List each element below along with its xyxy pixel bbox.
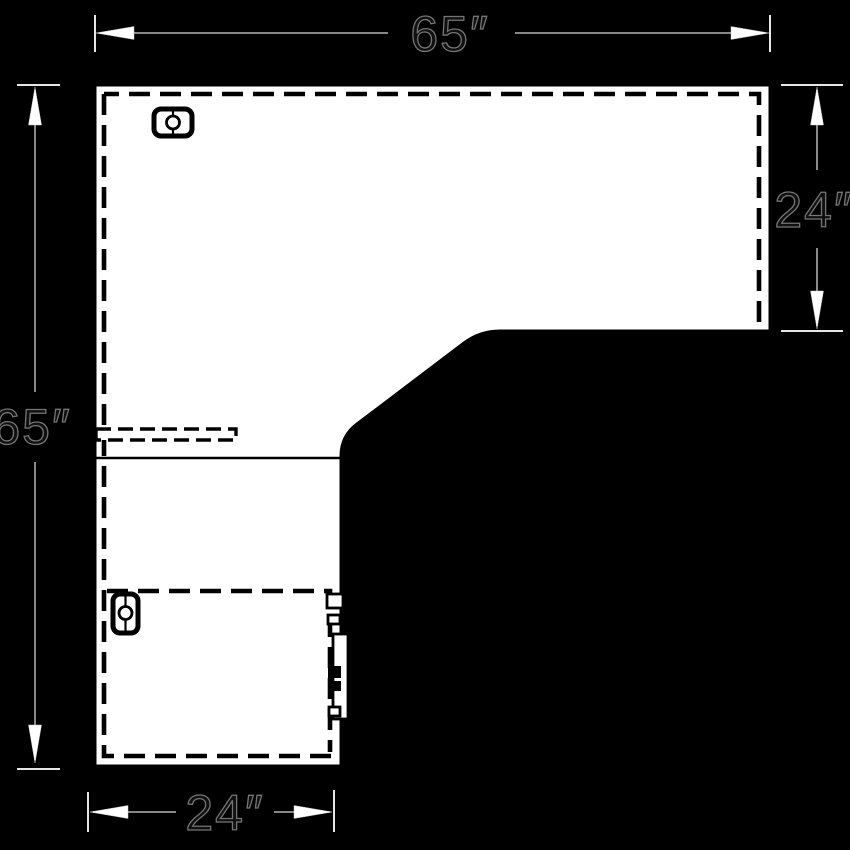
dimension-bottom: 24″ (88, 785, 334, 841)
grommet-icon-bottom (113, 594, 138, 633)
arrowhead-up-icon (811, 87, 824, 125)
arrowhead-left-icon (96, 27, 134, 40)
dimension-label-top: 65″ (410, 6, 489, 62)
tray-bracket-detail (96, 429, 236, 440)
dimension-label-right: 24″ (774, 182, 850, 238)
arrowhead-down-icon (811, 291, 824, 329)
dimension-right: 24″ (774, 85, 850, 331)
dimension-label-left: 65″ (0, 399, 72, 455)
arrowhead-right-icon (731, 27, 769, 40)
desk-plan-drawing: 65″ 24″ 65″ (0, 0, 850, 850)
dimension-left: 65″ (0, 85, 72, 769)
arrowhead-left-icon (90, 806, 128, 819)
desk-surface-outline (95, 85, 770, 766)
grommet-icon-top (154, 109, 192, 136)
technical-drawing-canvas: 65″ 24″ 65″ (0, 0, 850, 850)
arrowhead-right-icon (294, 806, 332, 819)
dimension-label-bottom: 24″ (185, 785, 264, 841)
arrowhead-up-icon (29, 87, 42, 125)
arrowhead-down-icon (29, 725, 42, 763)
dimension-top: 65″ (95, 6, 770, 62)
